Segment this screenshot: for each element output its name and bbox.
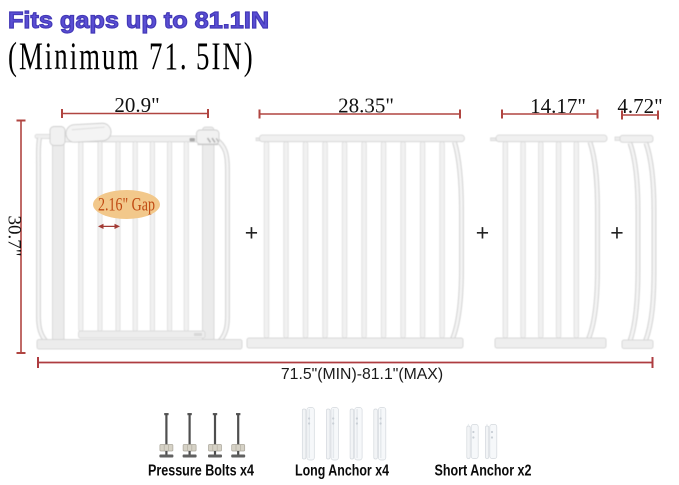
svg-text:4.72": 4.72" [617, 94, 662, 118]
svg-text:2.16" Gap: 2.16" Gap [98, 195, 155, 216]
svg-text:71.5"(MIN)-81.1"(MAX): 71.5"(MIN)-81.1"(MAX) [281, 366, 443, 383]
svg-text:Pressure Bolts x4: Pressure Bolts x4 [148, 463, 254, 480]
svg-text:+: + [610, 220, 623, 246]
svg-text:20.9": 20.9" [114, 93, 159, 117]
svg-text:30.7": 30.7" [4, 215, 25, 256]
svg-text:+: + [476, 220, 489, 246]
svg-text:Short Anchor x2: Short Anchor x2 [435, 463, 532, 480]
svg-text:14.17": 14.17" [530, 94, 586, 118]
svg-text:Long Anchor x4: Long Anchor x4 [295, 463, 389, 480]
svg-text:28.35": 28.35" [338, 94, 394, 118]
svg-text:+: + [245, 220, 258, 246]
